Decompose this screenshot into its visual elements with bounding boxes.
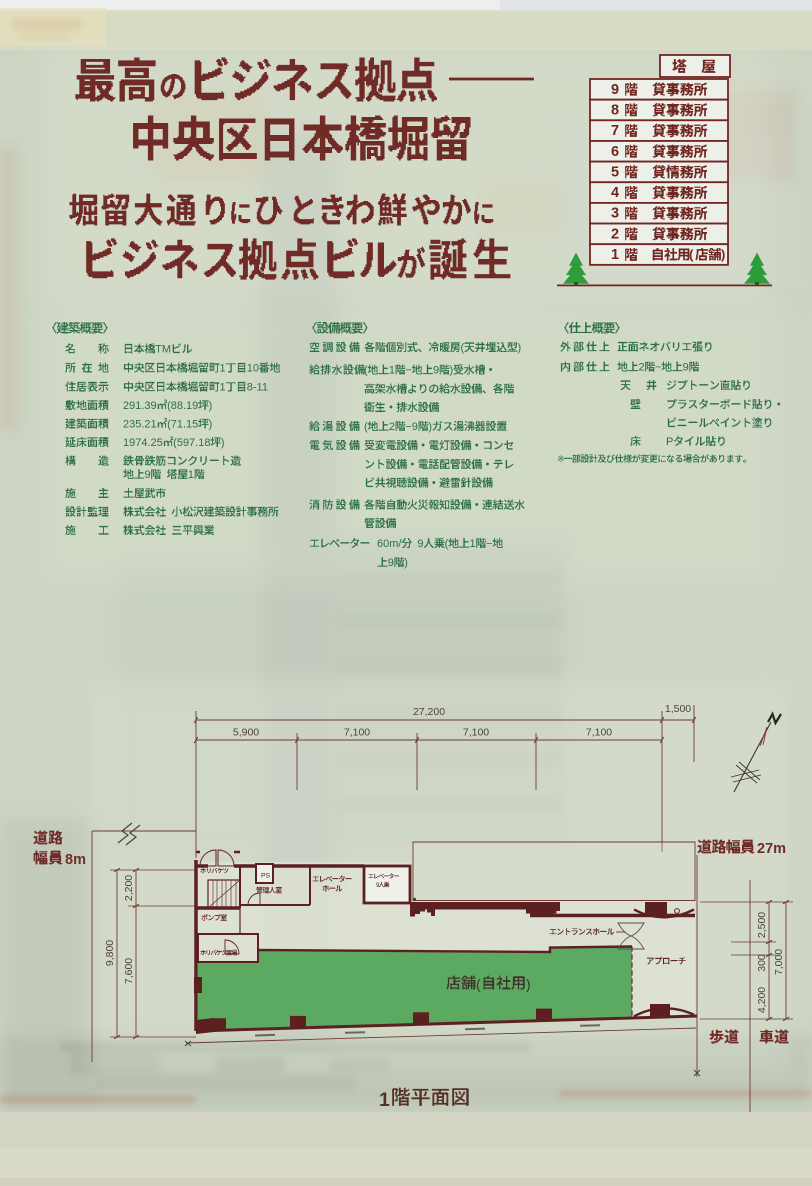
- svg-text:PS: PS: [261, 873, 271, 880]
- svg-text:9: 9: [683, 362, 689, 374]
- svg-text:(: (: [461, 342, 465, 354]
- svg-text:): ): [721, 247, 725, 262]
- svg-text:): ): [209, 419, 213, 431]
- svg-text:9: 9: [611, 82, 619, 98]
- svg-text:7: 7: [611, 123, 619, 139]
- svg-text:7,000: 7,000: [773, 949, 785, 975]
- svg-text:2: 2: [611, 226, 619, 242]
- svg-text:−9: −9: [405, 421, 418, 433]
- svg-text:8: 8: [611, 102, 619, 118]
- svg-text:): ): [428, 421, 432, 433]
- svg-text:2: 2: [389, 421, 395, 433]
- svg-text:2,500: 2,500: [756, 912, 768, 938]
- svg-text:(597.18: (597.18: [173, 437, 210, 449]
- svg-text:9: 9: [433, 365, 439, 377]
- svg-text:10: 10: [247, 363, 259, 375]
- svg-text:7,100: 7,100: [344, 727, 370, 739]
- svg-text:1: 1: [389, 365, 395, 377]
- svg-text:−: −: [405, 365, 411, 377]
- svg-text:TM: TM: [155, 344, 171, 356]
- svg-text:): ): [450, 365, 454, 377]
- svg-text:60m/: 60m/: [377, 538, 402, 550]
- svg-text:(: (: [364, 421, 368, 433]
- svg-text:6: 6: [611, 144, 619, 160]
- svg-text:27,200: 27,200: [413, 706, 445, 718]
- svg-text:4: 4: [611, 185, 619, 201]
- svg-text:2: 2: [638, 362, 644, 374]
- svg-text:3: 3: [611, 206, 619, 222]
- svg-text:(: (: [476, 976, 481, 992]
- svg-text:1: 1: [470, 538, 476, 550]
- svg-text:9: 9: [417, 538, 423, 550]
- svg-text:(: (: [364, 365, 368, 377]
- svg-text:291.39: 291.39: [123, 400, 157, 412]
- svg-text:5,900: 5,900: [233, 727, 259, 739]
- svg-text:(88.19: (88.19: [167, 400, 198, 412]
- svg-text:8-11: 8-11: [247, 382, 268, 394]
- svg-text:7,100: 7,100: [586, 727, 612, 739]
- svg-text:4,200: 4,200: [756, 987, 768, 1013]
- svg-text:9,800: 9,800: [104, 940, 116, 966]
- svg-text:1: 1: [220, 382, 226, 394]
- svg-text:27m: 27m: [757, 841, 786, 857]
- svg-text:): ): [221, 437, 225, 449]
- svg-text:1: 1: [611, 247, 619, 263]
- svg-text:): ): [209, 400, 213, 412]
- svg-text:−: −: [486, 538, 492, 550]
- svg-text:): ): [404, 557, 408, 569]
- svg-text:9: 9: [388, 557, 394, 569]
- svg-text:※: ※: [557, 454, 565, 464]
- svg-text:(: (: [445, 538, 449, 550]
- svg-text:7,100: 7,100: [463, 727, 489, 739]
- svg-text:(: (: [689, 247, 694, 262]
- svg-text:2,200: 2,200: [123, 875, 135, 901]
- svg-text:8m: 8m: [65, 852, 86, 868]
- svg-text:1: 1: [379, 1089, 390, 1111]
- svg-text:1974.25: 1974.25: [123, 437, 163, 449]
- svg-text:(71.15: (71.15: [167, 419, 198, 431]
- svg-text:9: 9: [144, 469, 150, 481]
- svg-text:1: 1: [220, 363, 226, 375]
- svg-text:7,600: 7,600: [123, 958, 135, 984]
- svg-text:): ): [518, 342, 522, 354]
- svg-text:): ): [526, 976, 531, 992]
- svg-text:P: P: [666, 436, 673, 448]
- svg-text:235.21: 235.21: [123, 419, 157, 431]
- svg-text:−: −: [655, 362, 661, 374]
- svg-text:1,500: 1,500: [665, 703, 691, 715]
- svg-text:1: 1: [188, 469, 194, 481]
- svg-text:5: 5: [611, 164, 619, 180]
